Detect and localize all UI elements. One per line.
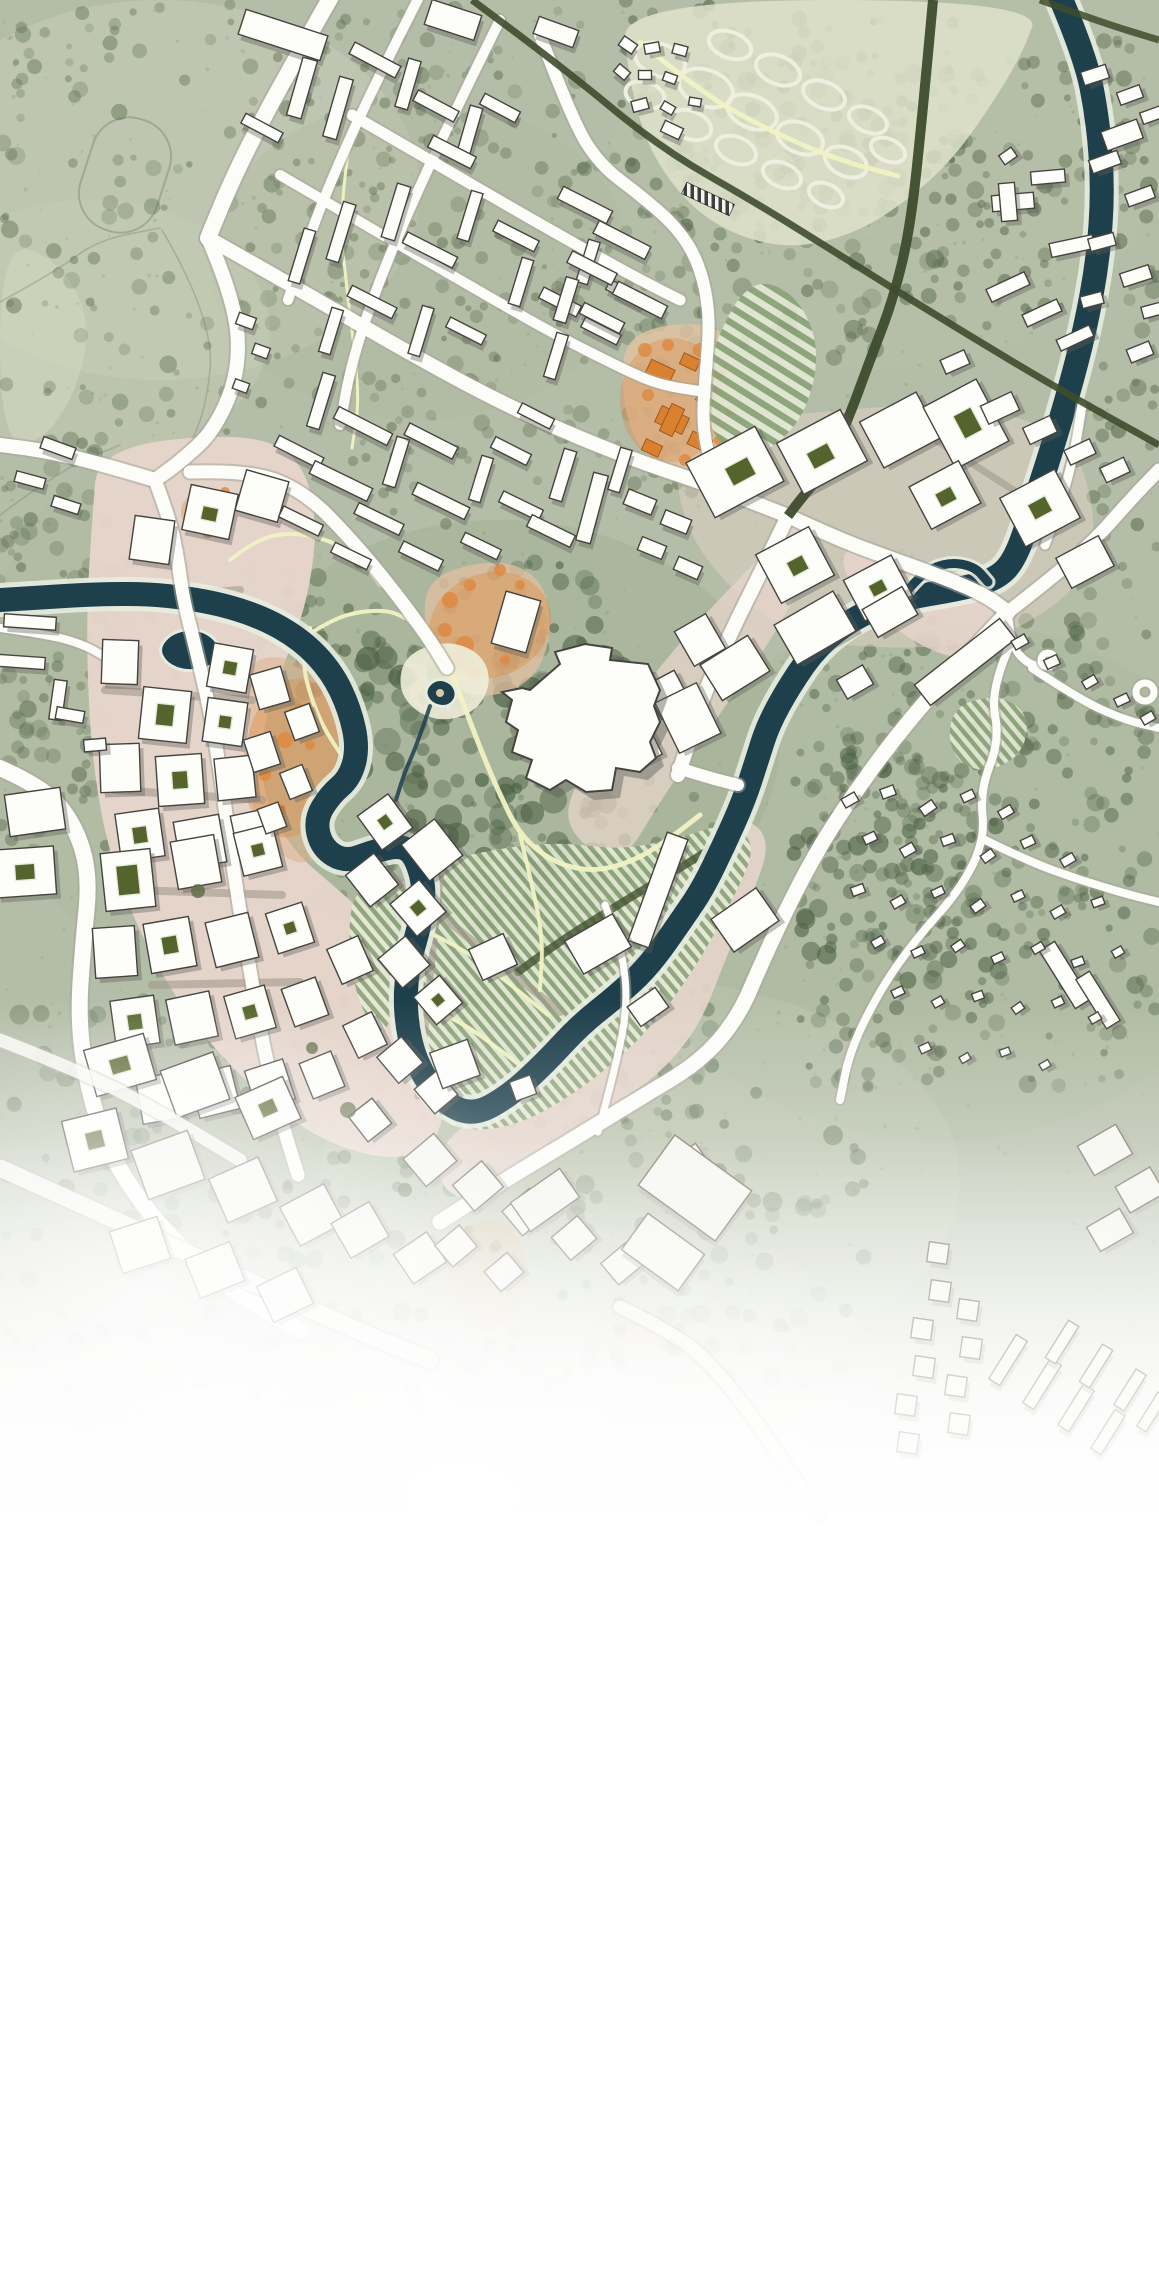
masterplan-map xyxy=(0,0,1159,2272)
bottom-white xyxy=(0,1620,1159,2272)
